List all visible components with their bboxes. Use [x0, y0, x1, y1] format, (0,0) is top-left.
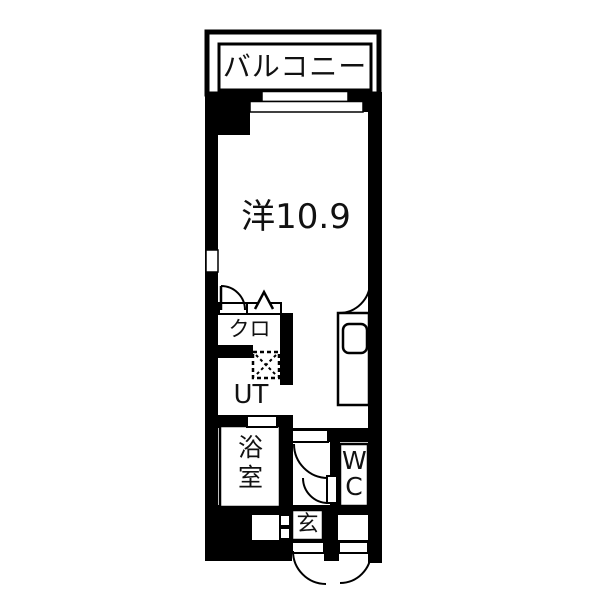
- wall-closet-right: [280, 313, 293, 385]
- floor-plan: バルコニー 洋10.9 クロ UT 浴室 WC 玄: [0, 0, 600, 600]
- service-door-leaf: [339, 542, 368, 553]
- wall-closet-bottom: [218, 345, 253, 358]
- wall-left: [205, 92, 218, 560]
- meter-space: [338, 515, 368, 540]
- toilet-label: WC: [342, 448, 366, 500]
- wall-niche-1: [281, 516, 289, 525]
- sliding-window-pane-1: [262, 92, 348, 102]
- folding-door-icon: [255, 292, 273, 309]
- pillar-top-left: [218, 96, 250, 135]
- closet-label: クロ: [219, 318, 280, 340]
- shoe-cabinet: [252, 515, 279, 540]
- sink-icon: [343, 324, 367, 353]
- utility-label: UT: [221, 382, 281, 409]
- room-door-leaf: [292, 430, 328, 442]
- toilet-door-swing-icon: [303, 478, 328, 503]
- pipe-space-icon: [253, 352, 279, 378]
- bathroom-label: 浴室: [237, 433, 264, 493]
- wall-niche-2: [281, 529, 289, 538]
- sliding-window-pane-2: [250, 102, 363, 113]
- entrance-label: 玄: [292, 513, 323, 536]
- room-door-swing-icon: [294, 444, 328, 478]
- bathroom-door-leaf: [247, 416, 277, 427]
- kitchen-door-swing-icon: [339, 282, 370, 313]
- balcony-label: バルコニー: [219, 52, 371, 81]
- closet-door-leaf-1: [219, 303, 247, 314]
- floor-plan-drawing: [0, 0, 600, 600]
- entrance-door-leaf: [292, 542, 324, 553]
- toilet-door-leaf: [327, 476, 337, 503]
- side-window: [206, 250, 218, 272]
- main-room-label: 洋10.9: [206, 200, 386, 236]
